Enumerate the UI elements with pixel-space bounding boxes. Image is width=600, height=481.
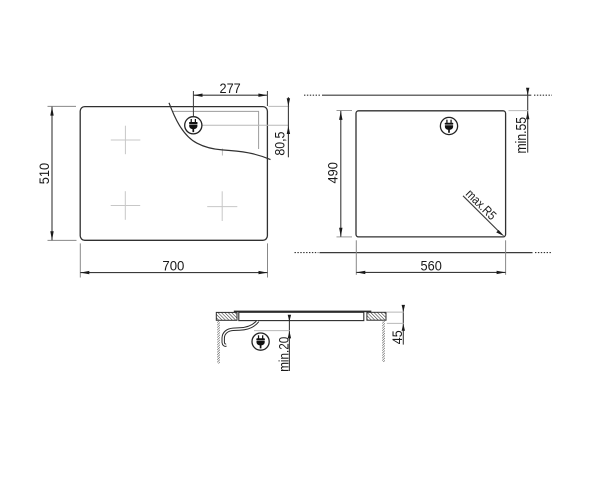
svg-text:490: 490 [325,162,341,183]
svg-text:510: 510 [36,163,52,184]
svg-text:560: 560 [421,258,442,274]
svg-text:277: 277 [220,80,241,96]
svg-text:45: 45 [389,330,405,344]
svg-text:700: 700 [162,258,184,274]
svg-text:min.55: min.55 [514,117,530,154]
svg-text:min.20: min.20 [276,337,292,372]
svg-text:80,5: 80,5 [271,131,287,155]
